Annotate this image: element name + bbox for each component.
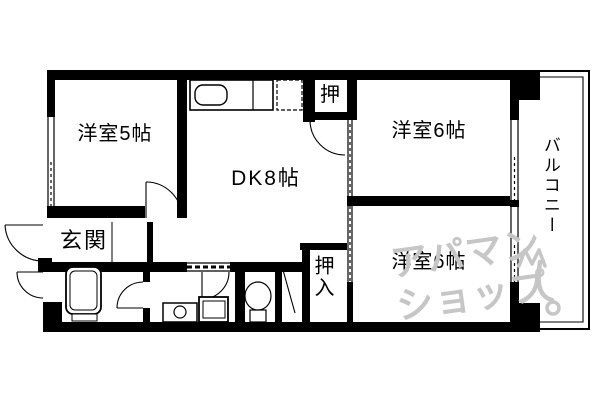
wall-toilet-left xyxy=(235,272,245,322)
floorplan: 洋室5帖 DK8帖 洋室6帖 洋室6帖 玄関 押 押入 バルコニー アパマン シ… xyxy=(0,0,600,400)
wall-corner-top-right xyxy=(510,70,540,100)
refrigerator-space-icon xyxy=(277,80,302,110)
room-label-western-room-6-upper: 洋室6帖 xyxy=(369,121,489,142)
door-washroom xyxy=(202,272,229,299)
door-toilet xyxy=(283,270,295,313)
wall-bottom xyxy=(43,322,540,332)
sliding-door-west6-lower-and-oshiire xyxy=(348,206,352,282)
room-label-western-room-6-lower: 洋室6帖 xyxy=(369,252,489,273)
wall-oshiire-left xyxy=(302,250,310,322)
wall-right-seg-c xyxy=(510,282,519,303)
wall-closet-upper-right xyxy=(347,70,357,120)
toilet-icon xyxy=(245,282,271,322)
door-bathroom xyxy=(117,282,143,308)
wall-hall-bottom-right xyxy=(230,262,310,272)
wall-right-seg-a xyxy=(510,100,519,120)
wall-divider-west6-rooms xyxy=(347,196,510,206)
room-label-closet-upper: 押 xyxy=(317,85,343,106)
window-left-sliding xyxy=(48,162,54,206)
wall-genkan-divider xyxy=(147,222,153,262)
wall-toilet-right xyxy=(275,272,282,322)
room-label-dk: DK8帖 xyxy=(206,168,326,190)
wall-oshiire-top xyxy=(300,243,347,250)
window-left-plain xyxy=(48,117,54,162)
washbasin-icon xyxy=(199,297,228,322)
wall-bath-right-lower xyxy=(143,308,150,322)
door-west5 xyxy=(146,182,182,218)
door-entry-lower xyxy=(17,272,43,298)
wall-closet-upper-bottom xyxy=(303,112,353,120)
kitchen-counter-icon xyxy=(190,80,273,110)
door-entry-upper xyxy=(5,225,43,261)
window-right-upper-plain xyxy=(511,120,518,157)
wall-left-seg-a xyxy=(47,70,55,117)
wall-right-seg-b xyxy=(510,200,519,207)
washing-machine-pan-icon xyxy=(163,303,197,322)
window-right-lower-plain xyxy=(511,207,518,245)
sliding-door-dk-west6-upper xyxy=(348,120,352,196)
sliding-door-dk-washroom xyxy=(187,263,230,271)
room-label-closet-lower: 押入 xyxy=(311,255,332,319)
wall-top xyxy=(47,70,513,80)
bathtub-icon xyxy=(66,267,101,321)
room-label-entrance: 玄関 xyxy=(53,229,115,252)
wall-west6b-left-lower xyxy=(347,282,353,322)
wall-block-bottom-left xyxy=(43,302,62,322)
wall-divider-west5-dk xyxy=(177,80,187,218)
window-right-lower-sliding xyxy=(511,245,518,282)
wall-hall-bottom-left xyxy=(38,262,187,272)
wall-genkan-top xyxy=(47,206,145,218)
door-closet-upper xyxy=(310,120,345,155)
room-label-western-room-5: 洋室5帖 xyxy=(63,124,167,145)
window-right-upper-sliding xyxy=(511,157,518,200)
floorplan-drawing xyxy=(0,0,600,400)
kitchen-sink-icon xyxy=(195,85,227,105)
room-label-balcony: バルコニー xyxy=(541,136,559,276)
wall-bath-right-upper xyxy=(143,272,150,282)
